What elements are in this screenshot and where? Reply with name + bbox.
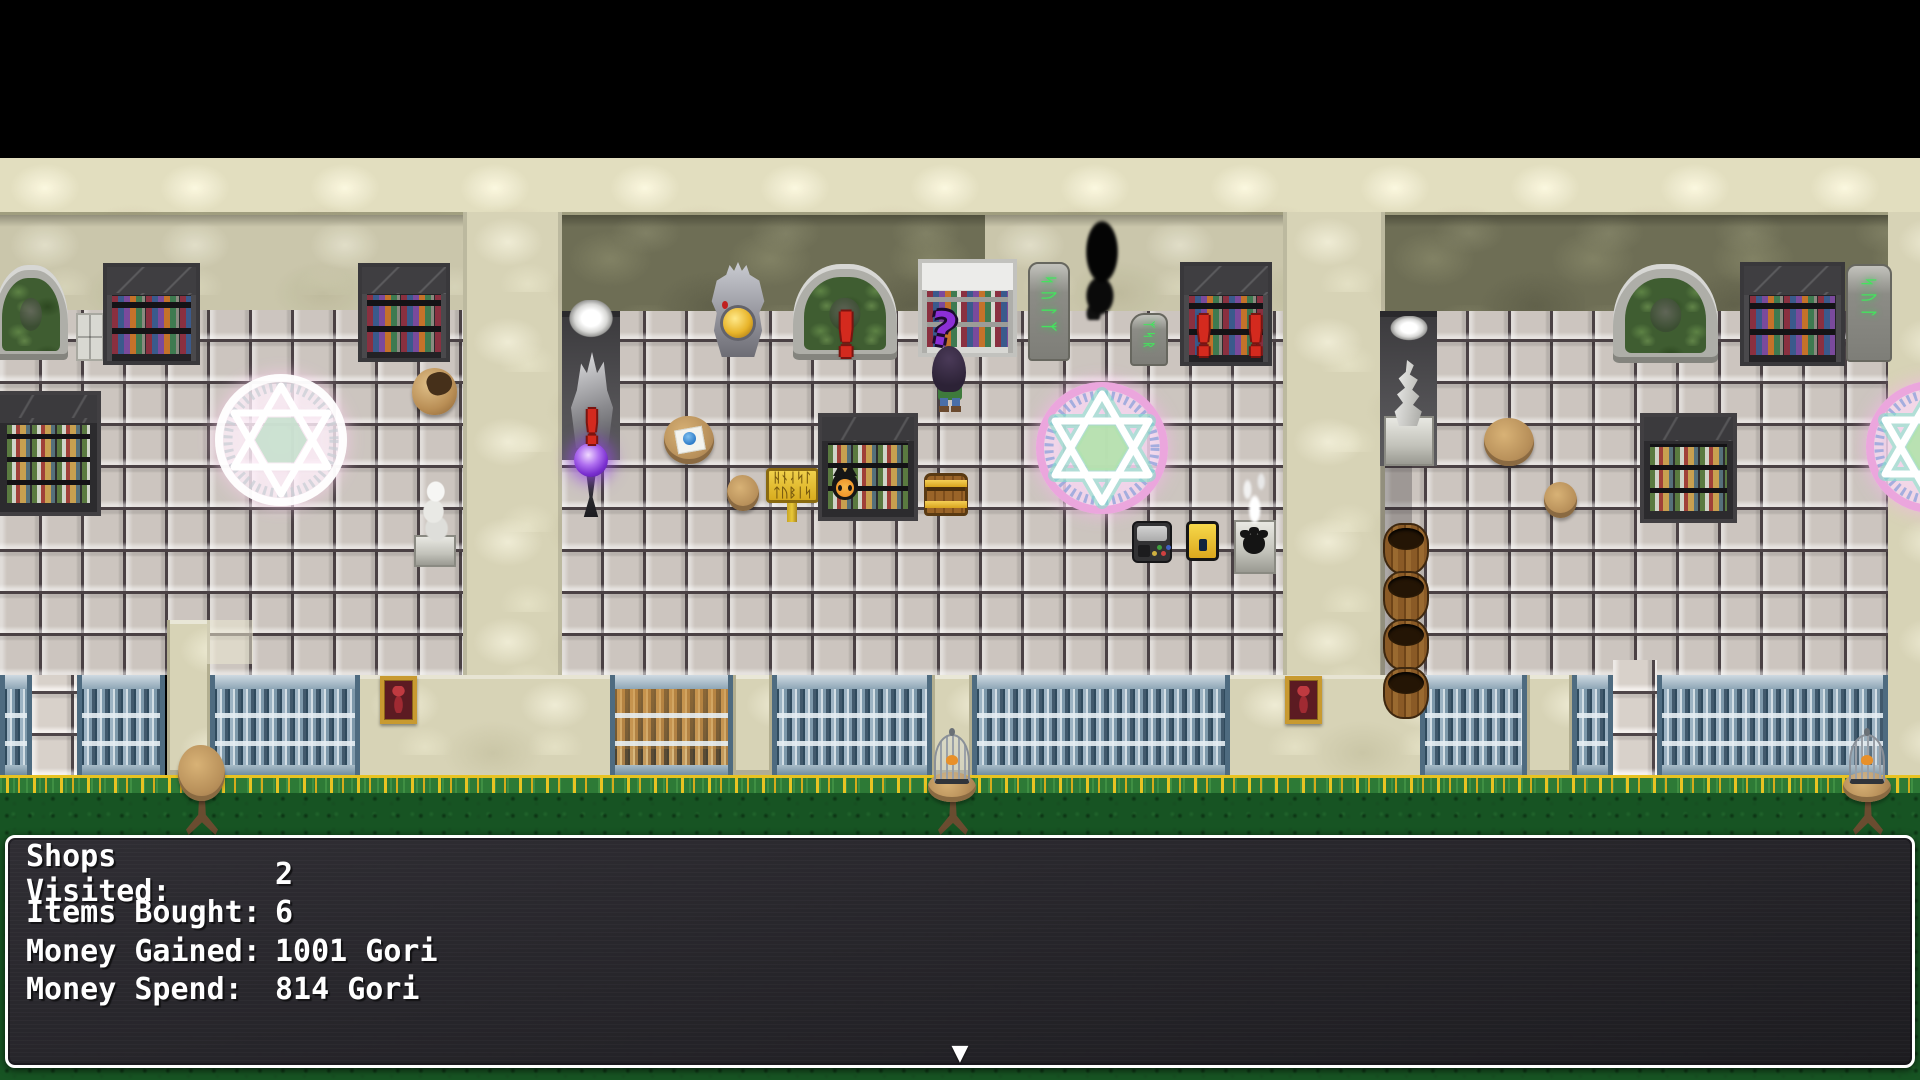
framed-picture-2 xyxy=(1285,676,1322,724)
stat-row-money-gained: Money Gained: 1001 Gori xyxy=(26,932,438,971)
barrel-opening xyxy=(1388,672,1423,694)
barrel xyxy=(1383,667,1429,719)
cracked-panel xyxy=(362,267,446,294)
sign-runes-1: ᚺᚾᛆᛋᛚ xyxy=(769,471,816,486)
stat-label: Money Gained: xyxy=(26,934,275,969)
picture-figure xyxy=(391,686,406,713)
cat-eye xyxy=(848,485,852,491)
game-screen: ! ᚺᚾᛆᛋᛚ ᛏᚢᛒᛁᛋ ! ? xyxy=(0,0,1920,1080)
fence-segment xyxy=(77,675,165,775)
jar-rows xyxy=(1650,444,1727,511)
white-wisp xyxy=(1236,466,1272,528)
cracked-panel xyxy=(1644,417,1733,441)
cat-eye xyxy=(838,485,842,491)
floor-light-patch xyxy=(207,620,253,664)
picture-figure xyxy=(1296,686,1311,713)
player-hair xyxy=(932,346,966,392)
cracked-panel xyxy=(0,395,97,423)
game-console[interactable] xyxy=(1132,521,1172,563)
birdcage xyxy=(934,734,970,784)
fence-pillar xyxy=(733,675,772,775)
cracked-panel xyxy=(1184,266,1268,295)
magic-circle-white xyxy=(211,370,351,510)
fence-segment-hay xyxy=(610,675,733,775)
framed-picture-1 xyxy=(380,676,417,724)
fence-segment xyxy=(1420,675,1527,775)
cage-knob xyxy=(1864,728,1870,736)
blue-orb-item xyxy=(683,432,696,445)
stat-row-money-spend: Money Spend: 814 Gori xyxy=(26,971,438,1010)
arch-emblem xyxy=(1650,299,1682,333)
book-rows xyxy=(367,295,441,351)
book-rows xyxy=(112,296,190,354)
stat-label: Money Spend: xyxy=(26,972,275,1007)
bookshelf-dark-1 xyxy=(103,263,200,365)
stat-row-shops-visited: Shops Visited: 2 xyxy=(26,855,438,894)
continue-arrow-icon[interactable]: ▼ xyxy=(8,1043,1912,1065)
paw-pedestal xyxy=(1230,466,1278,576)
console-screen xyxy=(1137,526,1167,541)
rune-stele-2: ᛋᚢᛚ xyxy=(1846,264,1892,362)
stool-1 xyxy=(727,475,759,511)
book-rows xyxy=(1750,296,1835,356)
potion-shelf-right xyxy=(1640,413,1737,523)
barrel xyxy=(1383,619,1429,671)
barrel xyxy=(1383,571,1429,623)
dragon-eye xyxy=(722,301,728,309)
stat-value: 6 xyxy=(275,895,293,930)
stat-row-items-bought: Items Bought: 6 xyxy=(26,894,438,933)
magic-circle-svg xyxy=(1032,378,1172,518)
lamp-stand xyxy=(583,473,599,517)
cracked-panel xyxy=(822,417,914,441)
walkway-tiles-right xyxy=(1613,660,1657,775)
bookshelf-dark-2 xyxy=(358,263,450,362)
cage-knob xyxy=(949,728,955,736)
stat-label: Items Bought: xyxy=(26,895,275,930)
cracked-panel xyxy=(107,267,196,295)
fence-segment xyxy=(210,675,360,775)
green-arch-relief-3 xyxy=(1613,264,1718,363)
sign-runes-2: ᛏᚢᛒᛁᛋ xyxy=(769,486,816,501)
rune-stone-small: ᛉᛋᚱ xyxy=(1130,313,1168,366)
treasure-chest[interactable] xyxy=(924,473,968,516)
message-window[interactable]: Shops Visited: 2 Items Bought: 6 Money G… xyxy=(5,835,1915,1068)
barrel-opening xyxy=(1388,528,1423,550)
table-top xyxy=(178,745,225,801)
fence-segment xyxy=(972,675,1230,775)
barrel-opening xyxy=(1388,576,1423,598)
walkway-tiles-left xyxy=(32,675,77,775)
top-wall-strip xyxy=(0,158,1920,215)
smoke-statue-left xyxy=(412,477,458,567)
potion-shelf-left xyxy=(0,391,101,516)
keyhole xyxy=(1199,539,1207,551)
stele-runes: ᛋᚢᛚᛉ xyxy=(1040,275,1059,337)
birdcage-table-1 xyxy=(928,730,976,835)
wall-top-shadow xyxy=(0,215,1920,227)
smoke-shape xyxy=(416,477,454,543)
cat-ear xyxy=(843,464,857,476)
chest-band xyxy=(925,480,967,487)
stool-2 xyxy=(1544,482,1577,518)
round-table-2 xyxy=(1484,418,1534,466)
chest-band xyxy=(925,501,967,508)
shelf-top xyxy=(922,263,1013,290)
divider-wall-1 xyxy=(463,212,562,675)
divider-wall-2 xyxy=(1283,212,1385,675)
event-exclamation-icon[interactable]: ! xyxy=(1191,310,1217,366)
bird xyxy=(1861,755,1873,765)
cat-face-sign[interactable] xyxy=(832,472,858,500)
magic-circle-svg xyxy=(1862,377,1920,517)
stat-value: 814 Gori xyxy=(275,972,420,1007)
stone-blocks xyxy=(76,313,104,361)
player-boots xyxy=(951,406,961,412)
player-boots xyxy=(939,406,949,412)
birdcage xyxy=(1849,734,1885,784)
player-character[interactable]: ? xyxy=(926,306,968,412)
fence-segment xyxy=(1572,675,1613,775)
magic-circle-right-partial xyxy=(1862,377,1920,517)
event-exclamation-icon[interactable]: ! xyxy=(832,305,860,367)
jar-rows xyxy=(7,425,90,502)
stele-runes: ᛋᚢᛚ xyxy=(1860,277,1879,324)
fence-pillar xyxy=(1527,675,1572,775)
smoke-statue-right xyxy=(1382,360,1436,466)
sign-post[interactable]: ᚺᚾᛆᛋᛚ ᛏᚢᛒᛁᛋ xyxy=(766,468,819,522)
fence-segment xyxy=(772,675,932,775)
gold-orb xyxy=(723,308,753,338)
stats-list: Shops Visited: 2 Items Bought: 6 Money G… xyxy=(26,855,438,1009)
console-buttons xyxy=(1161,551,1166,556)
garden-table xyxy=(178,745,225,835)
egg-shell xyxy=(412,368,457,415)
event-exclamation-icon[interactable]: ! xyxy=(581,404,603,452)
bird xyxy=(946,755,958,765)
bookshelf-dark-4 xyxy=(1740,262,1845,366)
yellow-chest[interactable] xyxy=(1186,521,1219,561)
magic-circle-svg xyxy=(211,370,351,510)
rune-stele-1: ᛋᚢᛚᛉ xyxy=(1028,262,1070,361)
alcove-light-cloth xyxy=(1386,316,1432,350)
sign-board: ᚺᚾᛆᛋᛚ ᛏᚢᛒᛁᛋ xyxy=(766,468,819,503)
chest-lid xyxy=(927,487,965,491)
barrel xyxy=(1383,523,1429,575)
cracked-panel xyxy=(1744,266,1841,295)
mid-room-floor xyxy=(562,311,1283,675)
fence-segment xyxy=(0,675,32,775)
birdcage-table-2 xyxy=(1843,730,1891,835)
magic-circle-colored xyxy=(1032,378,1172,518)
event-exclamation-icon[interactable]: ! xyxy=(1243,310,1269,366)
paw-print xyxy=(1243,534,1265,554)
shadow-ghost[interactable] xyxy=(1076,210,1128,320)
barrel-opening xyxy=(1388,624,1423,646)
console-dpad xyxy=(1138,545,1150,557)
stat-value: 1001 Gori xyxy=(275,934,438,969)
stele-runes: ᛉᛋᚱ xyxy=(1142,321,1156,352)
alcove-light-cloth xyxy=(564,300,618,352)
stat-value: 2 xyxy=(275,857,293,892)
round-table-paper xyxy=(664,416,714,468)
